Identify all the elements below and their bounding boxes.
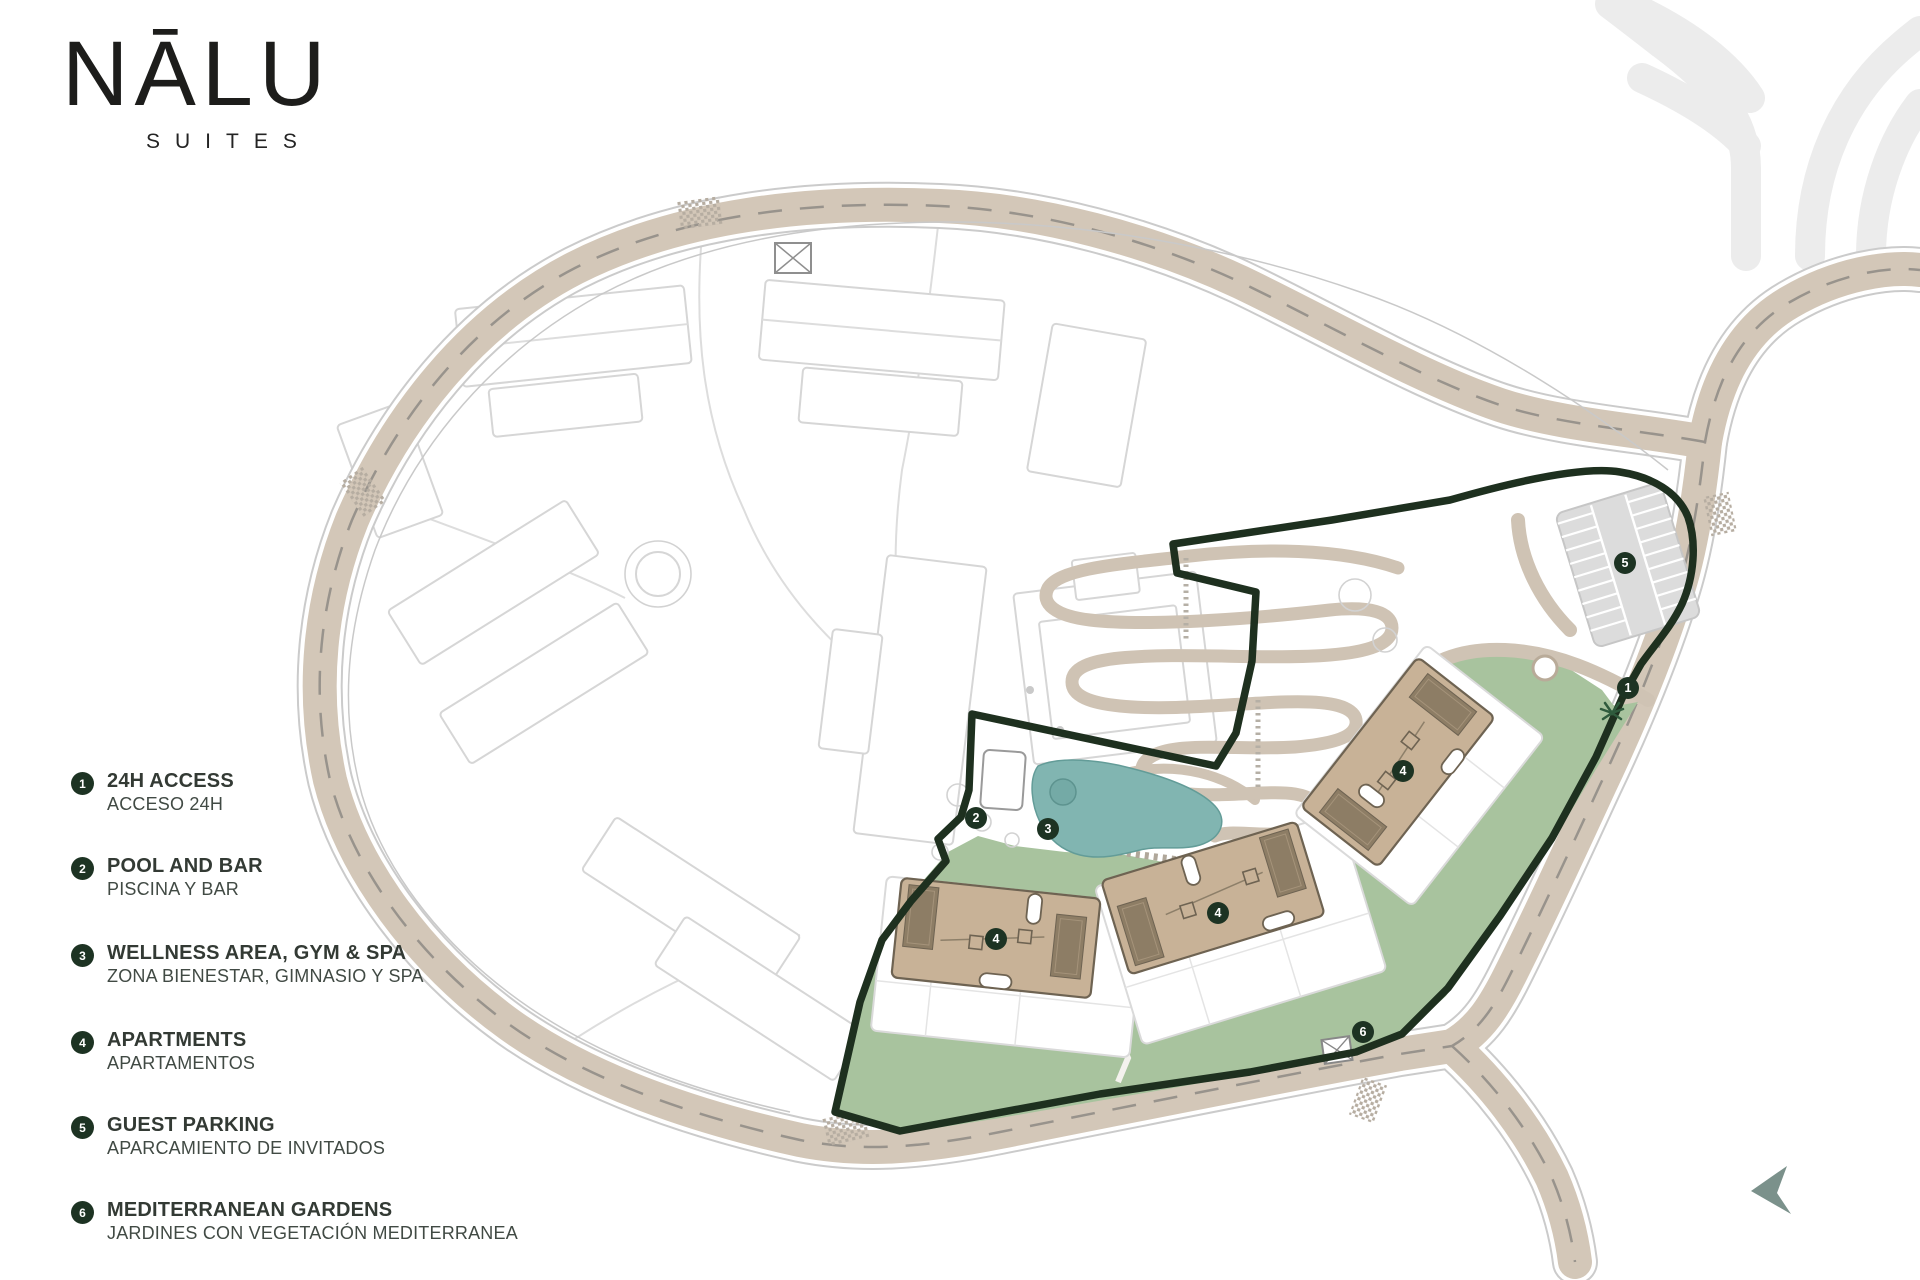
brand-logo: NĀLU SUITES [62, 26, 392, 154]
svg-text:4: 4 [1215, 906, 1222, 920]
legend-item: 3WELLNESS AREA, GYM & SPAZONA BIENESTAR,… [71, 942, 424, 988]
legend-subtitle: JARDINES CON VEGETACIÓN MEDITERRANEA [107, 1222, 518, 1245]
legend-item: 2POOL AND BARPISCINA Y BAR [71, 855, 263, 901]
svg-text:1: 1 [1625, 681, 1632, 695]
legend-title: APARTMENTS [107, 1029, 255, 1052]
map-marker: 3 [1037, 818, 1059, 840]
map-marker: 6 [1352, 1021, 1374, 1043]
map-marker: 4 [1392, 760, 1414, 782]
svg-text:2: 2 [973, 811, 980, 825]
legend-subtitle: ACCESO 24H [107, 793, 234, 816]
legend-number-badge: 5 [71, 1116, 94, 1139]
map-marker: 1 [1617, 677, 1639, 699]
map-marker: 4 [985, 928, 1007, 950]
site-plan-page: 12344456 NĀLU SUITES 124H ACCESSACCESO 2… [0, 0, 1920, 1280]
legend-title: POOL AND BAR [107, 855, 263, 878]
legend-title: GUEST PARKING [107, 1114, 385, 1137]
legend-item: 6MEDITERRANEAN GARDENSJARDINES CON VEGET… [71, 1199, 518, 1245]
brand-name: NĀLU [62, 26, 392, 122]
pool-bar-building [980, 750, 1026, 811]
legend-subtitle: APARCAMIENTO DE INVITADOS [107, 1137, 385, 1160]
legend-item: 5GUEST PARKINGAPARCAMIENTO DE INVITADOS [71, 1114, 385, 1160]
legend-item: 4APARTMENTSAPARTAMENTOS [71, 1029, 255, 1075]
svg-text:4: 4 [1400, 764, 1407, 778]
legend-number-badge: 3 [71, 944, 94, 967]
svg-text:6: 6 [1360, 1025, 1367, 1039]
utility-box [775, 243, 811, 273]
legend-subtitle: PISCINA Y BAR [107, 878, 263, 901]
tree-motif-icon [1610, 4, 1920, 256]
legend-item: 124H ACCESSACCESO 24H [71, 770, 234, 816]
map-marker: 4 [1207, 902, 1229, 924]
north-arrow-icon [1751, 1166, 1791, 1214]
svg-text:4: 4 [993, 932, 1000, 946]
map-marker: 2 [965, 807, 987, 829]
legend-subtitle: APARTAMENTOS [107, 1052, 255, 1075]
map-marker: 5 [1614, 552, 1636, 574]
brand-tagline: SUITES [146, 130, 392, 154]
legend-number-badge: 1 [71, 772, 94, 795]
legend-number-badge: 2 [71, 857, 94, 880]
svg-text:3: 3 [1045, 822, 1052, 836]
legend-title: 24H ACCESS [107, 770, 234, 793]
legend-number-badge: 6 [71, 1201, 94, 1224]
masterplan-map: 12344456 [0, 0, 1920, 1280]
legend-subtitle: ZONA BIENESTAR, GIMNASIO Y SPA [107, 965, 424, 988]
legend-title: MEDITERRANEAN GARDENS [107, 1199, 518, 1222]
legend-number-badge: 4 [71, 1031, 94, 1054]
svg-text:5: 5 [1622, 556, 1629, 570]
legend-title: WELLNESS AREA, GYM & SPA [107, 942, 424, 965]
